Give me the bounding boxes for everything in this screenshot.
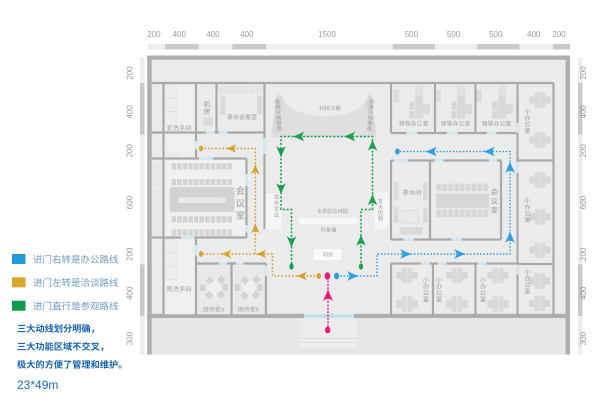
svg-text:200: 200 — [552, 30, 566, 39]
svg-text:23*49m: 23*49m — [17, 378, 58, 392]
svg-text:300: 300 — [126, 331, 135, 345]
svg-text:400: 400 — [527, 30, 541, 39]
svg-text:400: 400 — [579, 286, 588, 300]
svg-text:200: 200 — [579, 66, 588, 80]
svg-text:200: 200 — [147, 30, 161, 39]
svg-text:200: 200 — [126, 247, 135, 261]
svg-text:200: 200 — [579, 247, 588, 261]
svg-text:400: 400 — [206, 30, 220, 39]
svg-text:500: 500 — [447, 30, 461, 39]
svg-text:200: 200 — [579, 143, 588, 157]
svg-text:200: 200 — [126, 66, 135, 80]
svg-text:500: 500 — [489, 30, 503, 39]
svg-text:400: 400 — [173, 30, 187, 39]
svg-text:500: 500 — [405, 30, 419, 39]
svg-text:600: 600 — [579, 195, 588, 209]
svg-text:400: 400 — [126, 105, 135, 119]
svg-text:300: 300 — [579, 331, 588, 345]
svg-text:400: 400 — [240, 30, 254, 39]
svg-text:1500: 1500 — [318, 30, 336, 39]
svg-text:400: 400 — [126, 286, 135, 300]
svg-text:200: 200 — [126, 143, 135, 157]
svg-text:600: 600 — [126, 195, 135, 209]
svg-text:400: 400 — [579, 105, 588, 119]
